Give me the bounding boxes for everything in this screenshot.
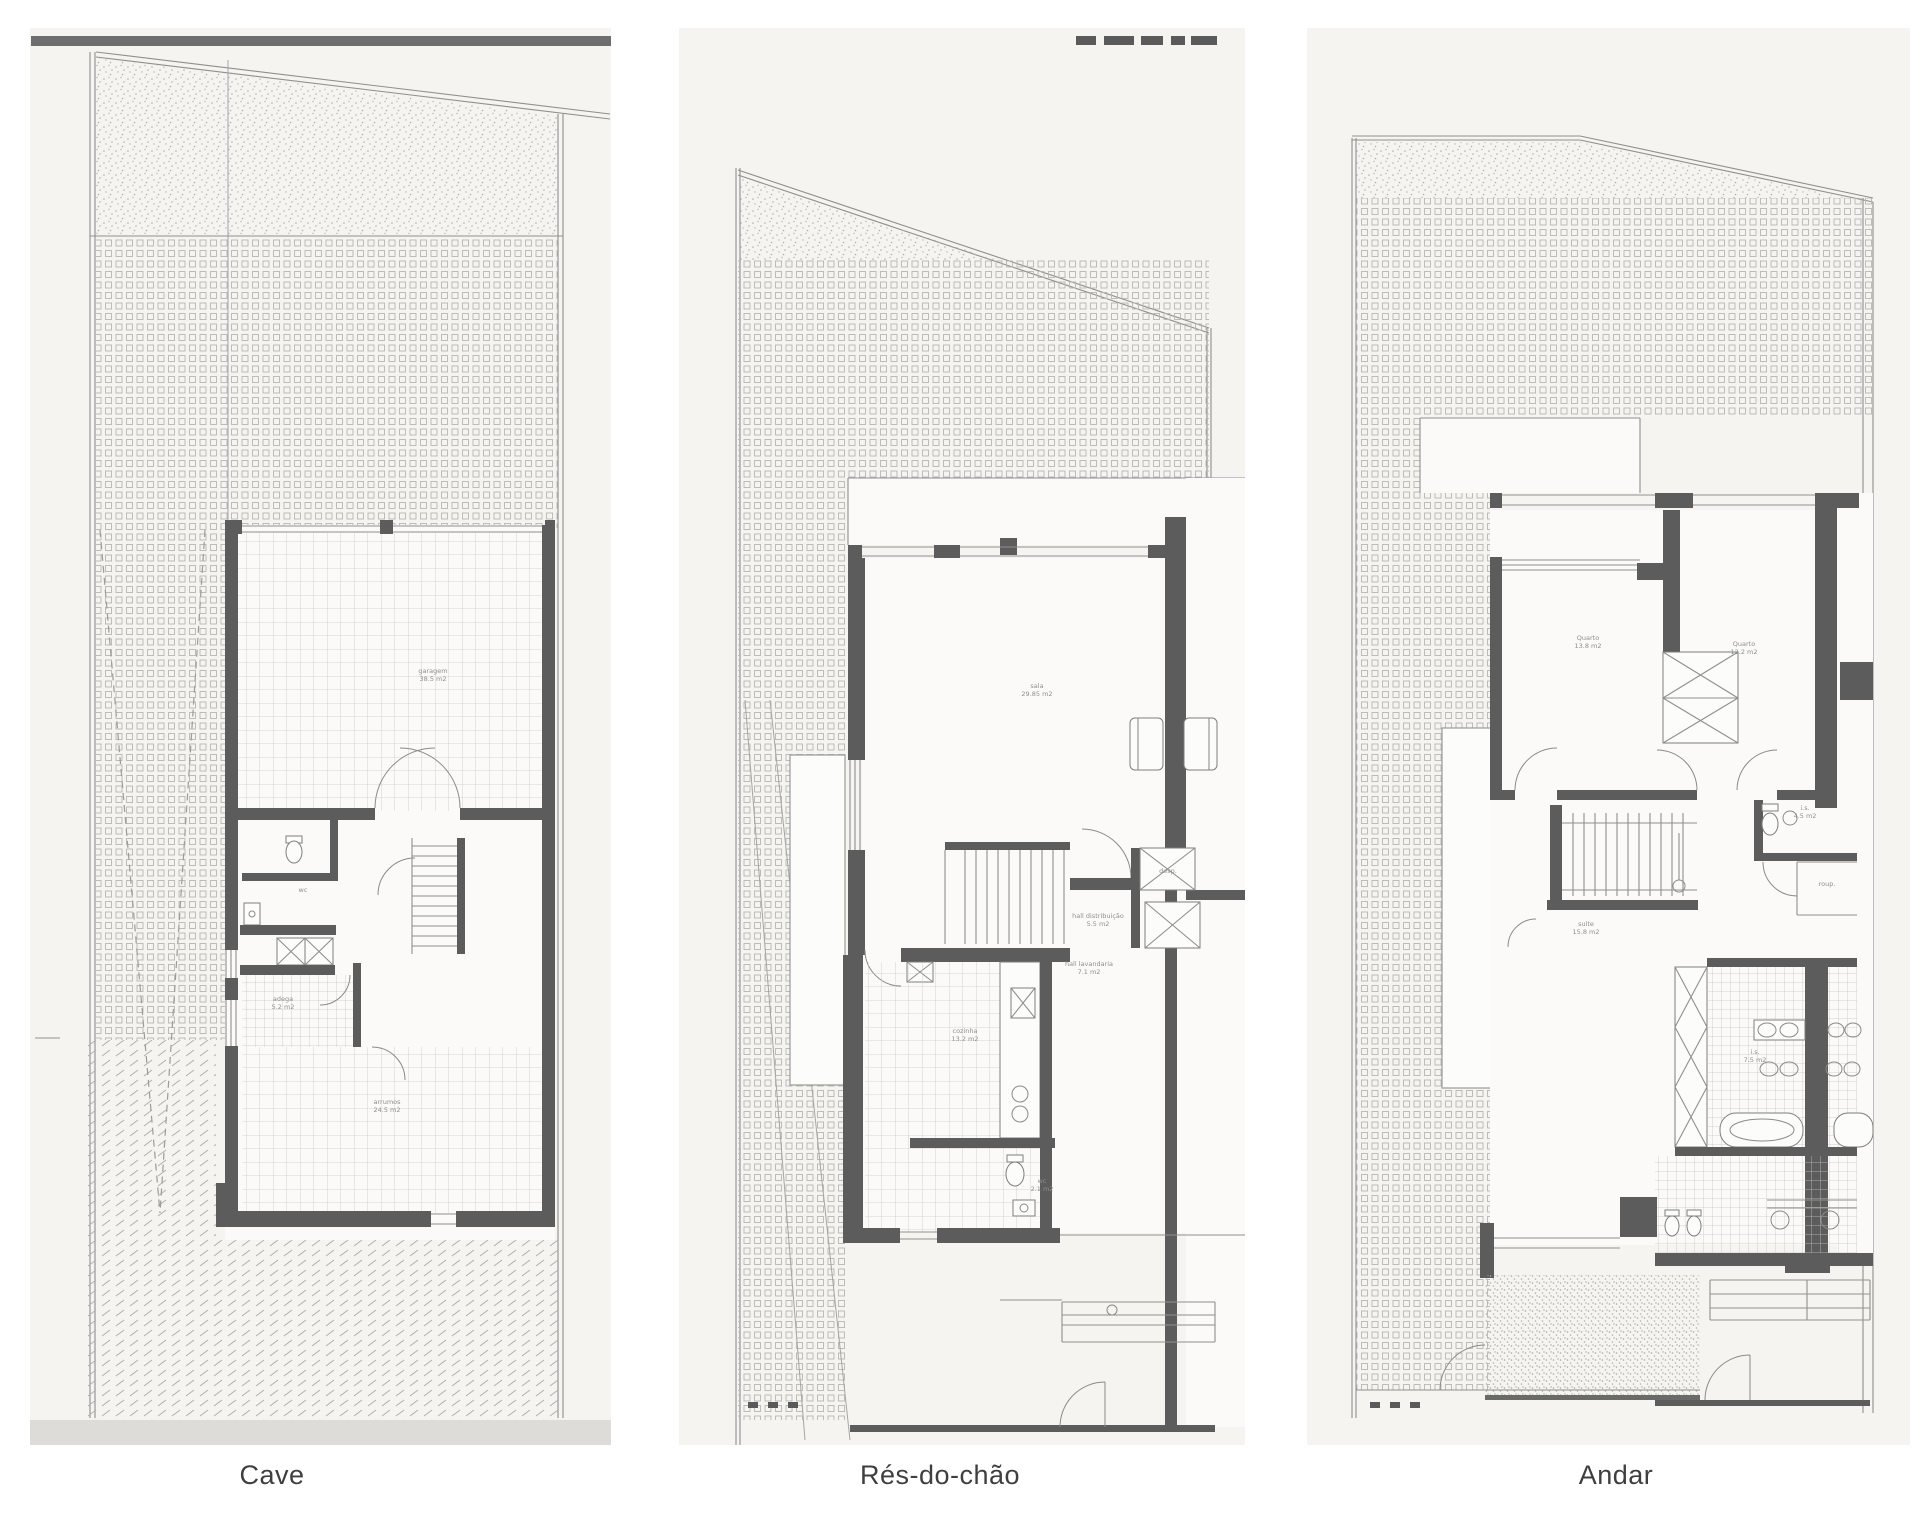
scan-bottom-shadow [30, 1420, 611, 1445]
garage-floor [238, 533, 542, 811]
toilet-icon [286, 836, 302, 863]
caption-andar: Andar [1579, 1460, 1654, 1491]
andar-plan: Quarto13.8 m2 Quarto12.2 m2 suite15.8 m2… [1307, 28, 1910, 1445]
room-label-wc: wc [299, 886, 308, 894]
bathtub-icons [1720, 1113, 1873, 1147]
room-label-quarto2: Quarto12.2 m2 [1730, 640, 1757, 656]
room-label-quarto1: Quarto13.8 m2 [1574, 634, 1601, 650]
kitchen-counter [1000, 962, 1040, 1138]
scanned-floor-plans-page: garagem38.5 m2 wc adega5.2 m2 arrumos24.… [0, 0, 1920, 1535]
bath-floor-lower [1655, 1156, 1857, 1253]
terrace [1420, 418, 1640, 493]
room-label-cozinha: cozinha13.2 m2 [951, 1027, 978, 1043]
closet-room [1797, 862, 1857, 915]
caption-res-do-chao: Rés-do-chão [860, 1460, 1020, 1491]
adega-floor [242, 975, 353, 1047]
toilet-icon [1006, 1155, 1024, 1186]
scale-bar [1370, 1402, 1420, 1408]
neighbour-strip [1186, 478, 1245, 1427]
scale-bar [748, 1402, 798, 1408]
cave-plan: garagem38.5 m2 wc adega5.2 m2 arrumos24.… [30, 28, 611, 1445]
room-label-roupeiro: roup. [1819, 880, 1836, 888]
garden-planter [790, 755, 845, 1085]
room-label-despensa: desp. [1159, 867, 1177, 875]
sink-icon [1013, 1200, 1035, 1216]
cave-building [216, 520, 555, 1240]
top-street-bar [31, 36, 611, 46]
room-label-adega: adega5.2 m2 [272, 995, 295, 1011]
wardrobe-icon [1663, 652, 1738, 743]
toilet-icon [1762, 804, 1778, 835]
res-do-chao-plan: sala29.85 m2 hall distribuição5.5 m2 hal… [679, 28, 1245, 1445]
sink-icon [244, 903, 260, 925]
floor-plans-svg: garagem38.5 m2 wc adega5.2 m2 arrumos24.… [0, 0, 1920, 1445]
room-label-garagem: garagem38.5 m2 [418, 667, 447, 683]
arrumos-floor [242, 1047, 542, 1213]
tall-wardrobe-icon [1675, 967, 1707, 1147]
laundry-machines [277, 938, 333, 965]
room-label-arrumos: arrumos24.5 m2 [373, 1098, 401, 1114]
andar-building [1480, 493, 1873, 1278]
caption-cave: Cave [239, 1460, 304, 1491]
